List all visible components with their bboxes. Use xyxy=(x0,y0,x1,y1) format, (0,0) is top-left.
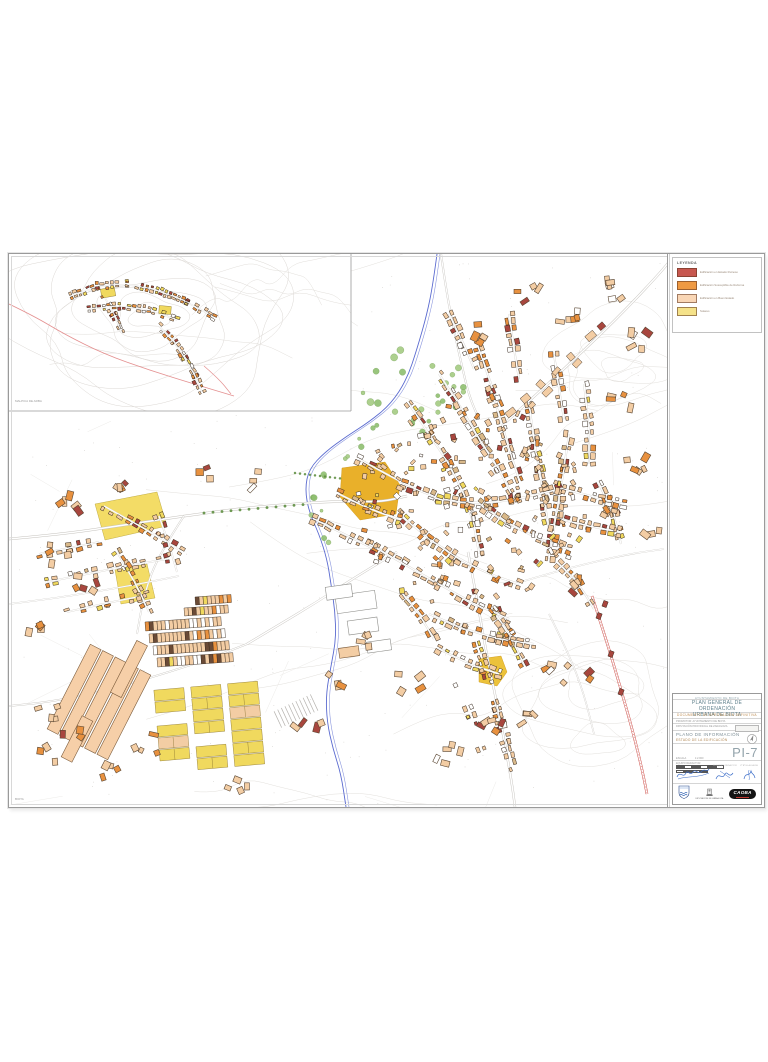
dpz-logo: DIPUTACIÓN DE ZARAGOZA xyxy=(696,788,724,801)
scale-label: ESCALA xyxy=(676,757,686,760)
signature-right: Vº Bº EL ALCALDE xyxy=(740,765,758,786)
signature-left xyxy=(676,765,710,786)
svg-text:BIOTA: BIOTA xyxy=(15,797,24,801)
legend-swatch xyxy=(677,294,697,303)
sheet-code: PI-7 xyxy=(732,745,758,760)
map-canvas: MALPICA DE ARBABIOTA xyxy=(9,254,764,807)
organisation-label: DIPUTACIÓN PROVINCIAL DE ZARAGOZA xyxy=(676,725,727,728)
column-divider-line xyxy=(669,254,670,807)
dpz-caption: DIPUTACIÓN DE ZARAGOZA xyxy=(696,798,724,800)
organisation-row: DIPUTACIÓN PROVINCIAL DE ZARAGOZA xyxy=(673,724,761,731)
scale-row: ESCALA 1:2.000 PI-7 xyxy=(673,744,761,761)
plan-title: PLAN GENERAL DE ORDENACIÓN URBANA DE BIO… xyxy=(673,700,761,713)
signature-middle: EL EQUIPO REDACTOR xyxy=(713,765,736,786)
legend-label: Edificación en Estado Ruinoso xyxy=(700,270,738,274)
legend-item: Edificación en Estado Ruinoso xyxy=(677,268,759,277)
sheet-right-column: LEYENDA Edificación en Estado RuinosoEdi… xyxy=(667,254,764,807)
biota-shield-logo xyxy=(678,785,690,804)
svg-text:MALPICA DE ARBA: MALPICA DE ARBA xyxy=(15,399,42,403)
legend-swatch xyxy=(677,268,697,277)
signature-middle-caption: EL EQUIPO REDACTOR xyxy=(713,765,736,768)
legend-title: LEYENDA xyxy=(677,261,759,265)
legend-label: Edificación en Buen Estado xyxy=(700,296,734,300)
logos-row: DIPUTACIÓN DE ZARAGOZA CAOBA xyxy=(673,784,761,804)
legend-item: Solares xyxy=(677,307,759,316)
legend-item: Edificación en Buen Estado xyxy=(677,294,759,303)
team-row: EQUIPO REDACTOR EL EQUIPO REDACTOR xyxy=(673,761,761,784)
legend-swatch xyxy=(677,281,697,290)
legend-label: Solares xyxy=(700,309,709,313)
legend-items: Edificación en Estado RuinosoEdificación… xyxy=(677,268,759,316)
signature-right-caption: Vº Bº EL ALCALDE xyxy=(740,765,758,768)
legend-item: Edificación Susceptible de Reforma xyxy=(677,281,759,290)
title-block: AYUNTAMIENTO DE BIOTA PLAN GENERAL DE OR… xyxy=(672,693,762,805)
drawing-sheet: MALPICA DE ARBABIOTA LEYENDA Edificación… xyxy=(8,253,765,808)
plan-type-row: PLANO DE INFORMACIÓN ESTADO DE LA EDIFIC… xyxy=(673,731,761,744)
plan-sheet-page: MALPICA DE ARBABIOTA LEYENDA Edificación… xyxy=(0,0,768,1062)
legend-label: Edificación Susceptible de Reforma xyxy=(700,283,744,287)
scale-value: 1:2.000 xyxy=(695,757,704,760)
plan-title-line1: PLAN GENERAL DE ORDENACIÓN xyxy=(673,700,761,712)
consultant-logo: CAOBA xyxy=(729,789,756,799)
legend-box: LEYENDA Edificación en Estado RuinosoEdi… xyxy=(672,257,762,333)
legend-swatch xyxy=(677,307,697,316)
